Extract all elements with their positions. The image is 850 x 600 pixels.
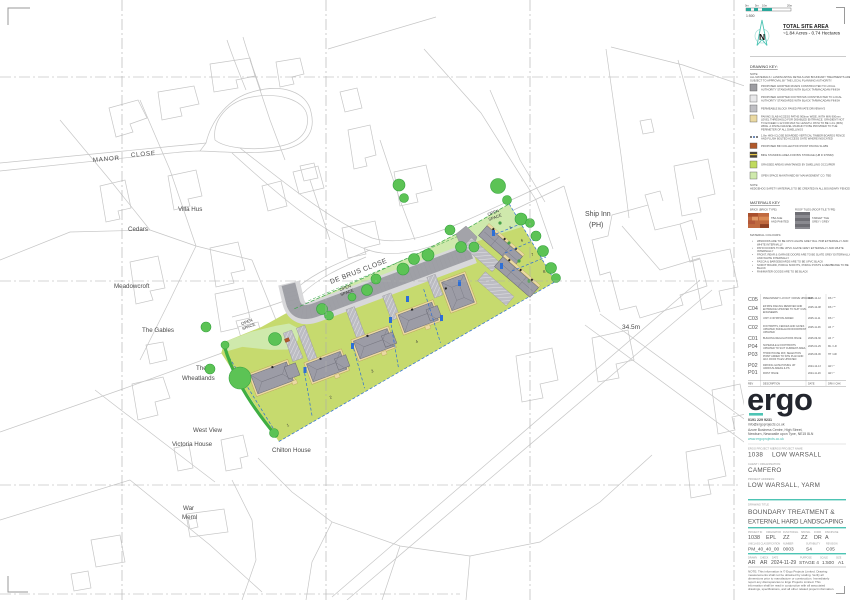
svg-text:OPEN SPACE MAINTAINED BY MANAG: OPEN SPACE MAINTAINED BY MANAGEMENT CO. … [761,174,831,178]
svg-text:RAINWATER GOODS ARE TO BE BLAC: RAINWATER GOODS ARE TO BE BLACK [757,270,808,274]
svg-text:WINDOWS ARE TO BE UPVC AGATE G: WINDOWS ARE TO BE UPVC AGATE GREY RAL 70… [757,239,848,243]
svg-text:10m: 10m [762,4,767,8]
svg-text:FRONT, REAR & GARAGE DOORS ARE: FRONT, REAR & GARAGE DOORS ARE TO BE SLA… [757,253,850,257]
svg-text:UPDATED: UPDATED [763,331,775,334]
svg-text:2024-11-29: 2024-11-29 [771,560,796,566]
svg-text:AND FLUSH BOLTED ACCESS GATE W: AND FLUSH BOLTED ACCESS GATE WHERE INDIC… [761,137,833,141]
svg-text:C01: C01 [748,336,758,342]
svg-text:AR: AR [760,560,768,566]
svg-text:ROOF TILES (ROOF TILE TYPE): ROOF TILES (ROOF TILE TYPE) [795,208,835,212]
svg-text:C03: C03 [748,316,758,322]
svg-text:A1: A1 [838,560,844,566]
svg-text:2025-09-30: 2025-09-30 [808,337,821,340]
svg-text:C02: C02 [748,325,758,331]
svg-text:PERIMETER OF ALL DWELLINGS: PERIMETER OF ALL DWELLINGS [761,127,803,131]
svg-text:ZZ: ZZ [801,535,808,541]
svg-text:UNICLASS CLASSIFICATION: UNICLASS CLASSIFICATION [748,543,780,546]
svg-text:0m: 0m [745,4,749,8]
svg-text:SOFFIT BOARD, PORCH SOFFITS, P: SOFFIT BOARD, PORCH SOFFITS, PORCH POSTS… [757,263,849,267]
svg-text:BUILDING REGULATIONS ISSUE: BUILDING REGULATIONS ISSUE [763,337,802,340]
svg-text:2024-12-13: 2024-12-13 [808,365,821,368]
svg-text:•: • [752,254,753,257]
svg-text:P01: P01 [748,370,758,376]
svg-text:A: A [825,535,829,541]
svg-text:DRN / CHK: DRN / CHK [828,383,841,386]
svg-text:DR: DR [814,535,822,541]
svg-text:AUTHORITY STANDARDS WITH BLACK: AUTHORITY STANDARDS WITH BLACK TARMACADA… [761,87,840,91]
svg-text:2024-11-29: 2024-11-29 [808,372,821,375]
svg-text:C04: C04 [748,306,758,312]
svg-text:20m: 20m [787,4,792,8]
svg-text:FORM: FORM [814,531,821,534]
svg-text:DRAWING TITLE: DRAWING TITLE [748,503,769,507]
svg-text:ERGO PROJECT NO.: ERGO PROJECT NO. [748,447,775,451]
svg-text:S4: S4 [806,547,812,553]
svg-text:SIZE: SIZE [836,557,842,560]
svg-text:info@ergoprojects.co.uk: info@ergoprojects.co.uk [748,422,785,426]
svg-text:HT / AR: HT / AR [828,353,837,356]
svg-text:2025-11-11: 2025-11-11 [808,317,821,320]
svg-text:EXTERNAL HARD LANDSCAPING: EXTERNAL HARD LANDSCAPING [748,519,844,526]
svg-text:ENGINEERS: ENGINEERS [763,311,778,314]
svg-text:WHITE INTERNALLY: WHITE INTERNALLY [757,242,783,246]
svg-text:AR / *: AR / * [828,365,835,368]
svg-text:Newburn, Newcastle upon Tyne,: Newburn, Newcastle upon Tyne, NE15 8LN [748,432,814,436]
svg-text:DS / **: DS / ** [828,306,836,309]
svg-text:TOTAL SITE AREA: TOTAL SITE AREA [783,24,829,30]
svg-text:~1.84 Acres - 0.74 Hectares: ~1.84 Acres - 0.74 Hectares [783,31,841,36]
svg-text:PATIO DOORS TO BE UPVC AGATE G: PATIO DOORS TO BE UPVC AGATE GREY EXTERN… [757,246,844,250]
svg-text:P02: P02 [748,363,758,369]
svg-text:REVISION: REVISION [826,543,838,546]
svg-text:ZZ: ZZ [783,535,790,541]
svg-text:LR / *: LR / * [828,337,834,340]
svg-text:1:500: 1:500 [822,560,834,566]
svg-text:AUTHORITY STANDARDS WITH BLACK: AUTHORITY STANDARDS WITH BLACK TARMACADA… [761,98,840,102]
svg-text:5m: 5m [755,4,759,8]
svg-text:SPATIAL: SPATIAL [801,531,811,534]
svg-text:HEDGEHOG SAFETY MATERIALS TO B: HEDGEHOG SAFETY MATERIALS TO BE CREATED … [750,186,850,190]
svg-text:AR / *: AR / * [828,372,835,375]
svg-text:PROJECT ID: PROJECT ID [748,531,762,534]
svg-text:2025-01-29: 2025-01-29 [808,345,821,348]
svg-text:2025-11-06: 2025-11-06 [808,326,821,329]
svg-text:•: • [752,240,753,243]
svg-text:ML / LR: ML / LR [828,345,837,348]
svg-text:ERGO PROJECT NAME: ERGO PROJECT NAME [773,447,803,451]
svg-text:DISCIPLINE: DISCIPLINE [825,531,839,534]
svg-text:SUITABILITY: SUITABILITY [806,543,821,546]
svg-text:BRICK (BRICK TYPE): BRICK (BRICK TYPE) [750,208,777,212]
svg-text:BOUNDARY TREATMENT &: BOUNDARY TREATMENT & [748,509,835,516]
svg-text:CLIENT / ORGANISATION:: CLIENT / ORGANISATION: [748,462,781,466]
svg-text:AR: AR [748,560,756,566]
svg-text:TBA AGE: TBA AGE [771,216,783,220]
svg-text:PROJECT ADDRESS:: PROJECT ADDRESS: [748,477,775,481]
svg-text:C05: C05 [748,297,758,303]
svg-text:VARIOUS AREAS & PS: VARIOUS AREAS & PS [763,367,790,370]
svg-text:PROPOSED BIN COLLECTION POINT: PROPOSED BIN COLLECTION POINT PAVING SLA… [761,144,828,148]
svg-text:1038: 1038 [748,535,760,541]
svg-text:NUMBER: NUMBER [783,543,794,546]
svg-text:UPDATED TO SUIT CURRENT AREA: UPDATED TO SUIT CURRENT AREA [763,347,806,350]
svg-text:AND PAINTED: AND PAINTED [771,219,789,223]
svg-text:ORIGINATOR: ORIGINATOR [766,531,781,534]
svg-text:GREY / GREY: GREY / GREY [812,219,830,223]
svg-text:PM_40_40_00: PM_40_40_00 [748,547,780,553]
svg-text:BLACK: BLACK [757,266,766,270]
svg-text:2025-06-06: 2025-06-06 [808,353,821,356]
svg-text:•: • [752,247,753,250]
svg-text:ergo: ergo [747,382,813,417]
svg-text:2025-12-12: 2025-12-12 [808,297,821,300]
svg-text:SCALE: SCALE [820,557,828,560]
svg-text:0191 229 9231: 0191 229 9231 [748,418,772,422]
svg-text:LR / *: LR / * [828,326,834,329]
svg-text:www.ergoprojects.co.uk: www.ergoprojects.co.uk [748,437,784,441]
svg-text:P04: P04 [748,344,758,350]
svg-text:UNIT 4 NOTATION ADDED: UNIT 4 NOTATION ADDED [763,317,794,320]
svg-text:TARGET TILE: TARGET TILE [812,216,829,220]
svg-text:INTERNALLY: INTERNALLY [757,249,774,253]
svg-text:MATERIALS KEY: MATERIALS KEY [750,201,780,205]
svg-text:PRELIMINARY LAYOUT / DRIVE UPD: PRELIMINARY LAYOUT / DRIVE UPDATED [763,297,813,300]
svg-text:•: • [752,264,753,267]
svg-text:PERMEABLE BLOCK PAVED PRIVATE: PERMEABLE BLOCK PAVED PRIVATE DRIVEWAYS [761,107,825,111]
svg-text:MATERIAL COLOURS:: MATERIAL COLOURS: [750,233,781,237]
svg-text:PROPOSED ADOPTED FOOTPATHS CON: PROPOSED ADOPTED FOOTPATHS CONSTRUCTED T… [761,95,842,99]
svg-text:PROPOSED ADOPTED ROADS CONSTRU: PROPOSED ADOPTED ROADS CONSTRUCTED TO LO… [761,84,836,88]
svg-text:CAMFERO: CAMFERO [748,467,782,474]
svg-text:drawings, specifications, and: drawings, specifications, and all other … [748,587,834,591]
svg-text:BIKE STANDING AREA FOR BIN STO: BIKE STANDING AREA FOR BIN STORAGE (HB D… [761,153,834,157]
svg-text:LOW WARSALL, YARM: LOW WARSALL, YARM [748,482,820,489]
svg-text:0003: 0003 [783,547,794,553]
svg-text:PURPOSE: PURPOSE [800,557,812,560]
svg-text:SUBJECT TO APPROVAL BY THE LOC: SUBJECT TO APPROVAL BY THE LOCAL PLANNIN… [750,78,832,82]
svg-text:GRASSED AREAS MAINTAINED BY DW: GRASSED AREAS MAINTAINED BY DWELLING OCC… [761,163,835,167]
svg-text:C05: C05 [826,547,835,553]
svg-text:STAGE 4: STAGE 4 [799,560,819,566]
svg-text:P03: P03 [748,352,758,358]
svg-text:•: • [752,271,753,274]
svg-text:N: N [759,32,765,42]
svg-text:FIRST ISSUE: FIRST ISSUE [763,372,779,375]
svg-text:1038: 1038 [748,452,763,459]
svg-text:1:500: 1:500 [746,14,755,18]
svg-text:DS / **: DS / ** [828,297,836,300]
svg-text:FASCIA & BARGEBOARDS ARE TO BE: FASCIA & BARGEBOARDS ARE TO BE UPVC BLAC… [757,259,823,263]
svg-text:DRAWING KEY:: DRAWING KEY: [750,65,778,69]
svg-text:EPL: EPL [766,535,776,541]
svg-text:ADJ. ROOF TILES UPDATED: ADJ. ROOF TILES UPDATED [763,358,797,361]
svg-text:DS / *: DS / * [828,317,835,320]
svg-text:2025-12-08: 2025-12-08 [808,306,821,309]
svg-text:NOTE:: NOTE: [750,183,758,187]
svg-text:FUNCTIONAL: FUNCTIONAL [783,531,799,534]
svg-text:AND WHITE INTERNALLY: AND WHITE INTERNALLY [757,256,789,260]
svg-text:LOW WARSALL: LOW WARSALL [772,452,821,459]
